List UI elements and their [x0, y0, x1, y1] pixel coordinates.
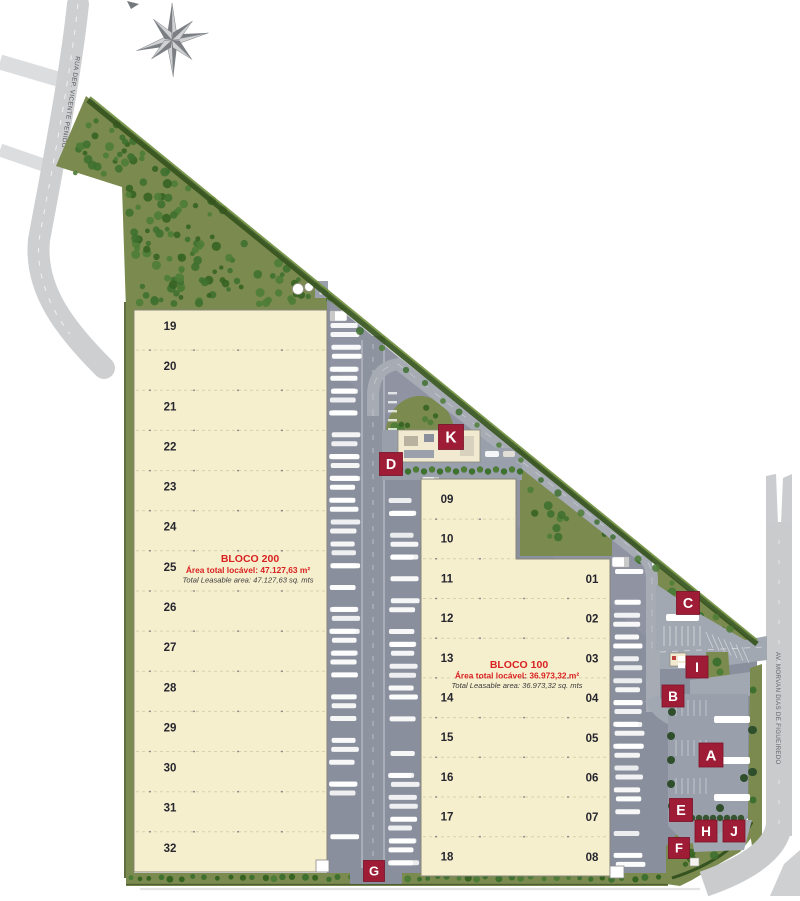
svg-text:H: H: [701, 824, 711, 839]
svg-text:21: 21: [164, 401, 177, 413]
svg-text:16: 16: [441, 772, 454, 784]
svg-text:05: 05: [586, 733, 599, 745]
svg-text:14: 14: [441, 693, 454, 705]
svg-text:A: A: [706, 748, 717, 764]
svg-text:J: J: [730, 824, 738, 839]
svg-text:I: I: [695, 660, 699, 675]
svg-text:Total Leasable area: 47.127,63: Total Leasable area: 47.127,63 sq. mts: [182, 576, 313, 585]
svg-text:17: 17: [441, 812, 454, 824]
svg-text:03: 03: [586, 653, 599, 665]
svg-text:29: 29: [164, 722, 177, 734]
svg-text:C: C: [683, 596, 693, 612]
svg-text:31: 31: [164, 803, 177, 815]
svg-text:09: 09: [441, 494, 454, 506]
svg-text:G: G: [369, 864, 379, 879]
svg-text:24: 24: [164, 522, 177, 534]
svg-text:B: B: [668, 689, 678, 704]
svg-text:01: 01: [586, 574, 599, 586]
svg-text:BLOCO 100: BLOCO 100: [490, 659, 549, 671]
svg-text:23: 23: [164, 482, 177, 494]
svg-text:02: 02: [586, 614, 599, 626]
svg-text:Área total locável: 36.973,32: Área total locável: 36.973,32 m²: [455, 670, 580, 681]
svg-text:Área total locável: 47.127,63: Área total locável: 47.127,63 m²: [186, 564, 311, 575]
svg-text:22: 22: [164, 441, 177, 453]
svg-text:19: 19: [164, 321, 177, 333]
svg-text:BLOCO 200: BLOCO 200: [221, 553, 280, 565]
svg-text:28: 28: [164, 682, 177, 694]
svg-text:27: 27: [164, 642, 177, 654]
svg-text:F: F: [675, 841, 683, 856]
svg-text:08: 08: [586, 852, 599, 864]
svg-text:26: 26: [164, 602, 177, 614]
svg-text:AV. MORVAN DIAS DE FIGUEIREDO: AV. MORVAN DIAS DE FIGUEIREDO: [774, 652, 781, 765]
svg-text:11: 11: [441, 573, 454, 585]
svg-text:13: 13: [441, 653, 454, 665]
svg-text:30: 30: [164, 763, 177, 775]
svg-text:15: 15: [441, 732, 454, 744]
svg-text:20: 20: [164, 361, 177, 373]
svg-text:06: 06: [586, 773, 599, 785]
svg-text:25: 25: [164, 562, 177, 574]
svg-text:K: K: [445, 430, 457, 447]
svg-text:10: 10: [441, 534, 454, 546]
svg-text:D: D: [386, 457, 396, 473]
svg-text:32: 32: [164, 843, 177, 855]
svg-text:E: E: [676, 803, 686, 819]
svg-text:04: 04: [586, 693, 599, 705]
svg-text:12: 12: [441, 613, 454, 625]
svg-text:Total Leasable area: 36.973,32: Total Leasable area: 36.973,32 sq. mts: [451, 681, 582, 690]
svg-text:18: 18: [441, 851, 454, 863]
svg-text:07: 07: [586, 812, 599, 824]
